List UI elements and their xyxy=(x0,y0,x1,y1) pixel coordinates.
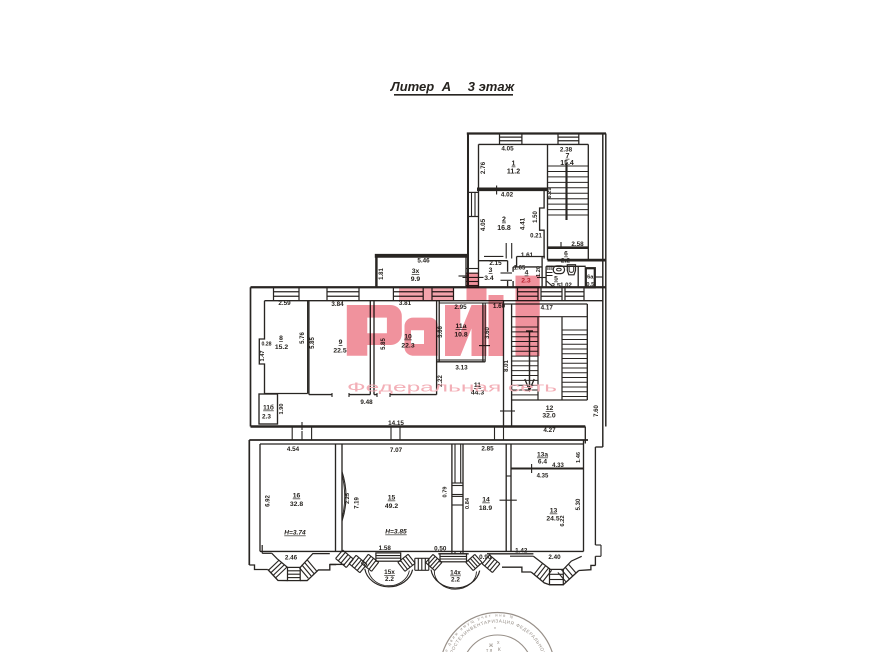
svg-text:1.20: 1.20 xyxy=(536,266,542,277)
svg-text:*: * xyxy=(494,627,496,633)
svg-text:2.85: 2.85 xyxy=(481,446,494,453)
svg-text:4.05: 4.05 xyxy=(480,218,487,231)
svg-text:3.81: 3.81 xyxy=(399,300,412,307)
svg-text:3.84: 3.84 xyxy=(331,301,344,308)
svg-text:т я: т я xyxy=(486,648,493,652)
svg-text:14х: 14х xyxy=(450,570,461,577)
svg-text:6: 6 xyxy=(564,251,568,258)
svg-text:32.8: 32.8 xyxy=(290,501,303,508)
svg-text:2.58: 2.58 xyxy=(571,241,584,248)
svg-text:7: 7 xyxy=(566,153,570,160)
svg-text:5.76: 5.76 xyxy=(300,332,306,344)
svg-text:4.41: 4.41 xyxy=(520,217,527,230)
svg-text:2.2: 2.2 xyxy=(385,576,394,583)
svg-text:15: 15 xyxy=(388,495,396,502)
svg-text:3х: 3х xyxy=(412,268,420,275)
svg-text:2.2: 2.2 xyxy=(451,577,460,584)
svg-text:6.4: 6.4 xyxy=(538,459,547,466)
svg-text:5.30: 5.30 xyxy=(576,498,582,510)
svg-text:49.2: 49.2 xyxy=(385,503,398,510)
svg-text:0.28: 0.28 xyxy=(261,342,271,348)
svg-text:1.46: 1.46 xyxy=(576,452,582,463)
svg-text:7.60: 7.60 xyxy=(594,405,600,417)
svg-text:0.21: 0.21 xyxy=(530,234,542,240)
svg-text:9.48: 9.48 xyxy=(360,399,373,406)
svg-text:2: 2 xyxy=(502,217,506,224)
svg-text:22.5: 22.5 xyxy=(333,348,346,355)
svg-text:15х: 15х xyxy=(384,569,395,576)
svg-text:3: 3 xyxy=(489,267,493,274)
svg-text:1.42: 1.42 xyxy=(515,548,528,555)
svg-text:1.47: 1.47 xyxy=(260,351,266,362)
svg-text:13а: 13а xyxy=(537,452,548,459)
svg-text:6.92: 6.92 xyxy=(266,495,272,507)
svg-text:14.15: 14.15 xyxy=(388,420,404,427)
svg-text:осн не движ имущ учет и: осн не движ имущ учет инв N xyxy=(440,613,515,652)
svg-text:4: 4 xyxy=(525,270,529,277)
svg-text:3.4: 3.4 xyxy=(484,275,494,282)
svg-text:2.25: 2.25 xyxy=(345,493,351,504)
svg-text:х: х xyxy=(497,640,500,646)
svg-text:2.3: 2.3 xyxy=(262,414,271,421)
svg-text:2.46: 2.46 xyxy=(285,555,298,562)
svg-text:А: А xyxy=(441,79,451,94)
svg-text:12: 12 xyxy=(546,405,554,412)
svg-text:9.9: 9.9 xyxy=(411,276,421,283)
svg-text:2.59: 2.59 xyxy=(278,300,291,307)
svg-text:3.66: 3.66 xyxy=(438,326,444,338)
svg-text:11.2: 11.2 xyxy=(507,169,520,176)
svg-text:8.01: 8.01 xyxy=(504,360,510,372)
svg-text:4.17: 4.17 xyxy=(541,305,554,312)
svg-text:2.15: 2.15 xyxy=(489,260,502,267)
svg-text:13: 13 xyxy=(550,508,558,515)
svg-text:1.58: 1.58 xyxy=(379,545,392,552)
svg-text:3.13: 3.13 xyxy=(455,365,468,372)
svg-text:15.2: 15.2 xyxy=(275,344,288,351)
svg-text:11б: 11б xyxy=(263,404,274,412)
svg-text:1.50: 1.50 xyxy=(533,211,539,223)
svg-text:1: 1 xyxy=(512,161,516,168)
svg-text:4.27: 4.27 xyxy=(543,427,556,434)
svg-text:16: 16 xyxy=(293,493,301,500)
svg-text:18.9: 18.9 xyxy=(479,505,492,512)
svg-text:0.84: 0.84 xyxy=(465,497,471,509)
svg-text:0.79: 0.79 xyxy=(443,487,449,498)
svg-text:32.0: 32.0 xyxy=(542,413,555,420)
svg-text:к: к xyxy=(498,647,501,652)
svg-text:8: 8 xyxy=(279,335,283,342)
svg-text:1.61: 1.61 xyxy=(521,252,534,259)
svg-text:14: 14 xyxy=(482,497,490,504)
svg-text:7.07: 7.07 xyxy=(390,447,403,454)
svg-text:2.40: 2.40 xyxy=(548,554,561,561)
svg-text:6.22: 6.22 xyxy=(560,515,566,526)
svg-text:4.05: 4.05 xyxy=(501,146,514,153)
svg-text:Федеральная сеть: Федеральная сеть xyxy=(347,380,557,395)
svg-text:2.76: 2.76 xyxy=(480,161,487,174)
svg-text:Литер: Литер xyxy=(390,79,434,94)
svg-text:H=3.85: H=3.85 xyxy=(385,529,407,536)
svg-text:7.19: 7.19 xyxy=(355,497,361,509)
svg-text:5.46: 5.46 xyxy=(417,258,430,265)
svg-text:1.90: 1.90 xyxy=(279,404,285,415)
svg-text:0.50: 0.50 xyxy=(434,545,447,552)
svg-text:5.85: 5.85 xyxy=(310,337,316,349)
svg-text:5: 5 xyxy=(554,276,558,283)
svg-text:4.02: 4.02 xyxy=(501,192,514,199)
svg-text:24.5: 24.5 xyxy=(546,516,559,523)
svg-text:H=3.74: H=3.74 xyxy=(284,530,306,537)
svg-text:16.8: 16.8 xyxy=(497,225,511,232)
svg-text:3 этаж: 3 этаж xyxy=(468,79,516,94)
svg-text:1.81: 1.81 xyxy=(379,268,385,280)
svg-text:4.54: 4.54 xyxy=(287,446,300,453)
svg-text:9: 9 xyxy=(339,339,343,346)
svg-text:4.35: 4.35 xyxy=(537,474,549,480)
svg-text:6а: 6а xyxy=(587,275,594,281)
svg-text:6.29: 6.29 xyxy=(547,187,553,199)
